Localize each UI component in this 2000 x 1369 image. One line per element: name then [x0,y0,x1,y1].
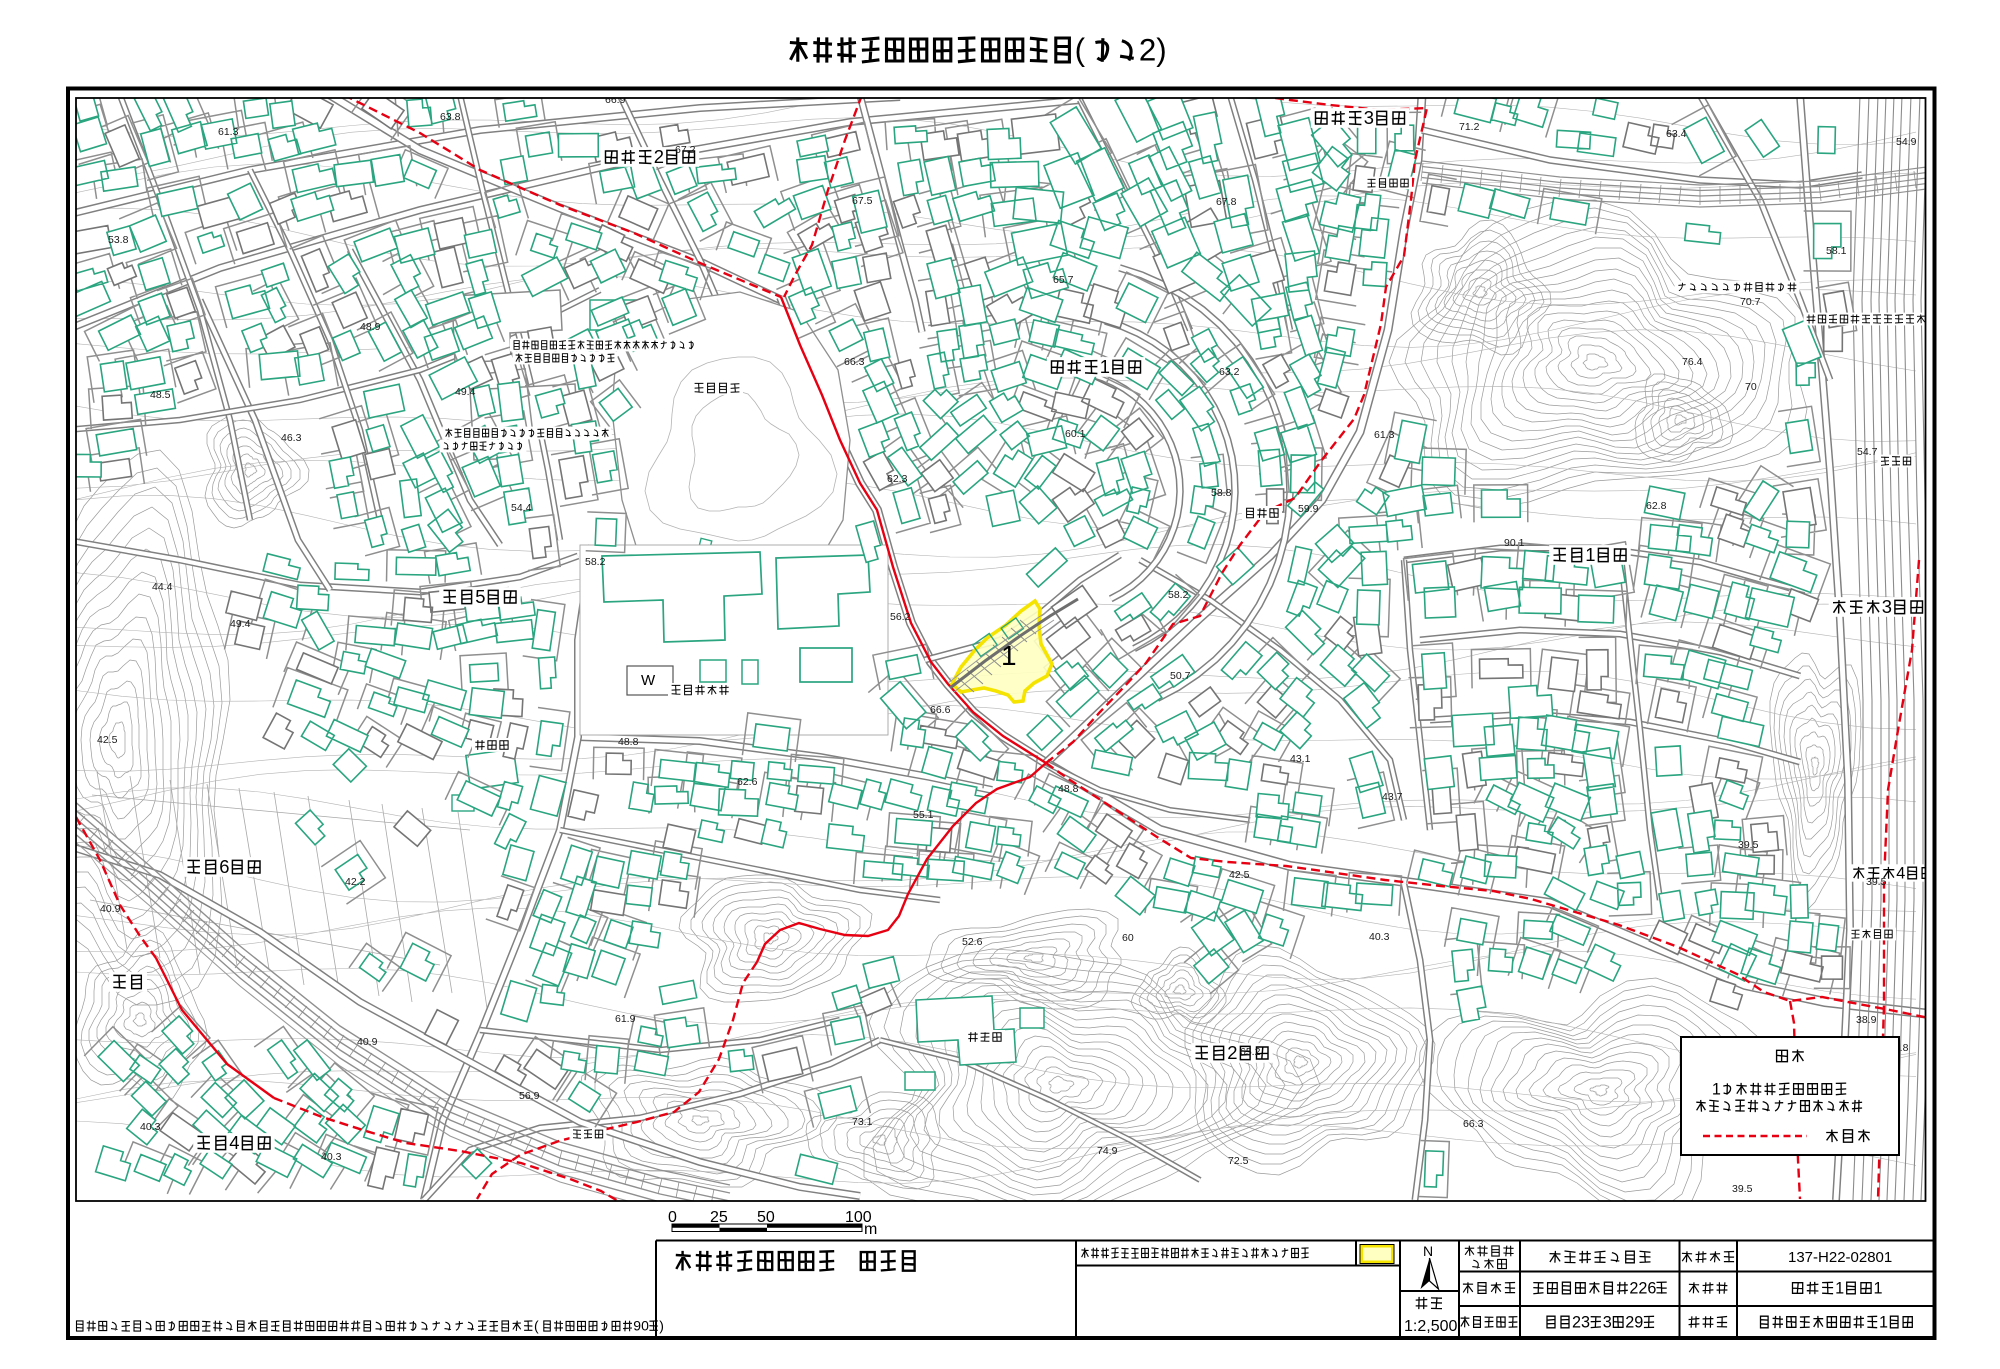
svg-text:48.8: 48.8 [618,736,639,748]
svg-text:74.9: 74.9 [1097,1145,1118,1157]
svg-text:W: W [641,672,656,689]
svg-text:48.9: 48.9 [360,321,381,333]
svg-text:60: 60 [1122,932,1134,944]
svg-text:4: 4 [229,1132,239,1153]
svg-text:42.2: 42.2 [345,876,366,888]
svg-text:42.5: 42.5 [1229,869,1250,881]
svg-text:63.2: 63.2 [1219,366,1240,378]
svg-text:49.4: 49.4 [455,386,476,398]
svg-text:0: 0 [668,1209,677,1226]
svg-text:39.5: 39.5 [1732,1183,1753,1195]
svg-text:29: 29 [1625,1313,1643,1331]
svg-text:2: 2 [654,146,664,167]
svg-text:6: 6 [219,856,229,877]
svg-text:62.3: 62.3 [887,473,908,485]
svg-text:70.7: 70.7 [1740,296,1761,308]
svg-text:43.7: 43.7 [1382,791,1403,803]
svg-text:54.4: 54.4 [511,502,532,514]
svg-text:62.6: 62.6 [737,776,758,788]
svg-text:67.5: 67.5 [852,195,873,207]
svg-text:58.8: 58.8 [1211,487,1232,499]
svg-text:71.2: 71.2 [1459,121,1480,133]
svg-text:90: 90 [633,1318,649,1334]
svg-text:44.4: 44.4 [152,581,173,593]
svg-text:2: 2 [1227,1042,1237,1063]
svg-text:226: 226 [1629,1279,1656,1297]
svg-text:54.7: 54.7 [1857,446,1878,458]
svg-text:39.5: 39.5 [1866,876,1887,888]
svg-text:60.1: 60.1 [1065,428,1086,440]
svg-text:40.3: 40.3 [140,1121,161,1133]
svg-text:1:2,500: 1:2,500 [1404,1318,1457,1335]
svg-text:66.3: 66.3 [844,356,865,368]
svg-text:1: 1 [1835,1279,1844,1297]
svg-text:58.2: 58.2 [1168,589,1189,601]
svg-text:72.5: 72.5 [1228,1155,1249,1167]
svg-text:5: 5 [475,586,485,607]
svg-text:65.2: 65.2 [1240,1046,1261,1058]
svg-text:56.9: 56.9 [519,1090,540,1102]
svg-text:48.8: 48.8 [1058,783,1079,795]
svg-text:40.9: 40.9 [100,903,121,915]
svg-text:3: 3 [1882,596,1892,617]
svg-text:39.5: 39.5 [1738,839,1759,851]
svg-text:(: ( [534,1318,539,1334]
svg-text:40.9: 40.9 [357,1036,378,1048]
svg-text:66.3: 66.3 [1463,1118,1484,1130]
svg-text:42.5: 42.5 [97,734,118,746]
svg-text:61.9: 61.9 [615,1013,636,1025]
svg-text:50.7: 50.7 [1170,670,1191,682]
svg-text:66.6: 66.6 [930,704,951,716]
svg-text:90.1: 90.1 [1504,537,1525,549]
svg-text:62.8: 62.8 [1646,500,1667,512]
svg-text:1: 1 [1879,1313,1888,1331]
svg-text:76.4: 76.4 [1682,356,1703,368]
svg-text:): ) [659,1318,664,1334]
svg-text:46.3: 46.3 [281,432,302,444]
svg-text:43.1: 43.1 [1290,753,1311,765]
svg-text:67.2: 67.2 [675,144,696,156]
svg-text:3: 3 [1603,1313,1612,1331]
svg-text:38.9: 38.9 [1856,1014,1877,1026]
svg-text:137-H22-02801: 137-H22-02801 [1788,1249,1892,1266]
svg-text:2): 2) [1139,32,1167,67]
svg-text:1: 1 [1712,1080,1721,1098]
svg-text:40.3: 40.3 [1369,931,1390,943]
svg-text:23: 23 [1572,1313,1590,1331]
svg-text:67.8: 67.8 [1216,196,1237,208]
svg-text:25: 25 [710,1209,728,1226]
svg-text:70: 70 [1745,381,1757,393]
svg-text:52.6: 52.6 [962,936,983,948]
svg-text:48.5: 48.5 [150,389,171,401]
svg-text:1: 1 [1100,356,1110,377]
svg-text:63.8: 63.8 [440,111,461,123]
svg-text:N: N [1423,1243,1433,1259]
svg-text:m: m [864,1221,877,1238]
svg-text:65.7: 65.7 [1053,274,1074,286]
svg-text:73.1: 73.1 [852,1116,873,1128]
svg-text:59.9: 59.9 [1298,503,1319,515]
svg-text:56.2: 56.2 [890,611,911,623]
svg-text:55.1: 55.1 [913,809,934,821]
svg-text:58.1: 58.1 [1826,245,1847,257]
svg-text:4: 4 [1896,864,1905,882]
svg-text:63.4: 63.4 [1666,128,1687,140]
svg-text:61.3: 61.3 [218,126,239,138]
svg-text:1: 1 [1874,1279,1883,1297]
svg-text:50: 50 [757,1209,775,1226]
svg-text:1: 1 [1001,640,1017,671]
svg-text:40.3: 40.3 [321,1151,342,1163]
svg-text:(: ( [1075,32,1086,67]
svg-text:61.3: 61.3 [1374,429,1395,441]
svg-text:3: 3 [1364,107,1374,128]
svg-text:54.9: 54.9 [1896,136,1917,148]
svg-text:53.8: 53.8 [108,234,129,246]
svg-text:1: 1 [1585,544,1595,565]
svg-text:49.4: 49.4 [230,618,251,630]
svg-text:58.2: 58.2 [585,556,606,568]
